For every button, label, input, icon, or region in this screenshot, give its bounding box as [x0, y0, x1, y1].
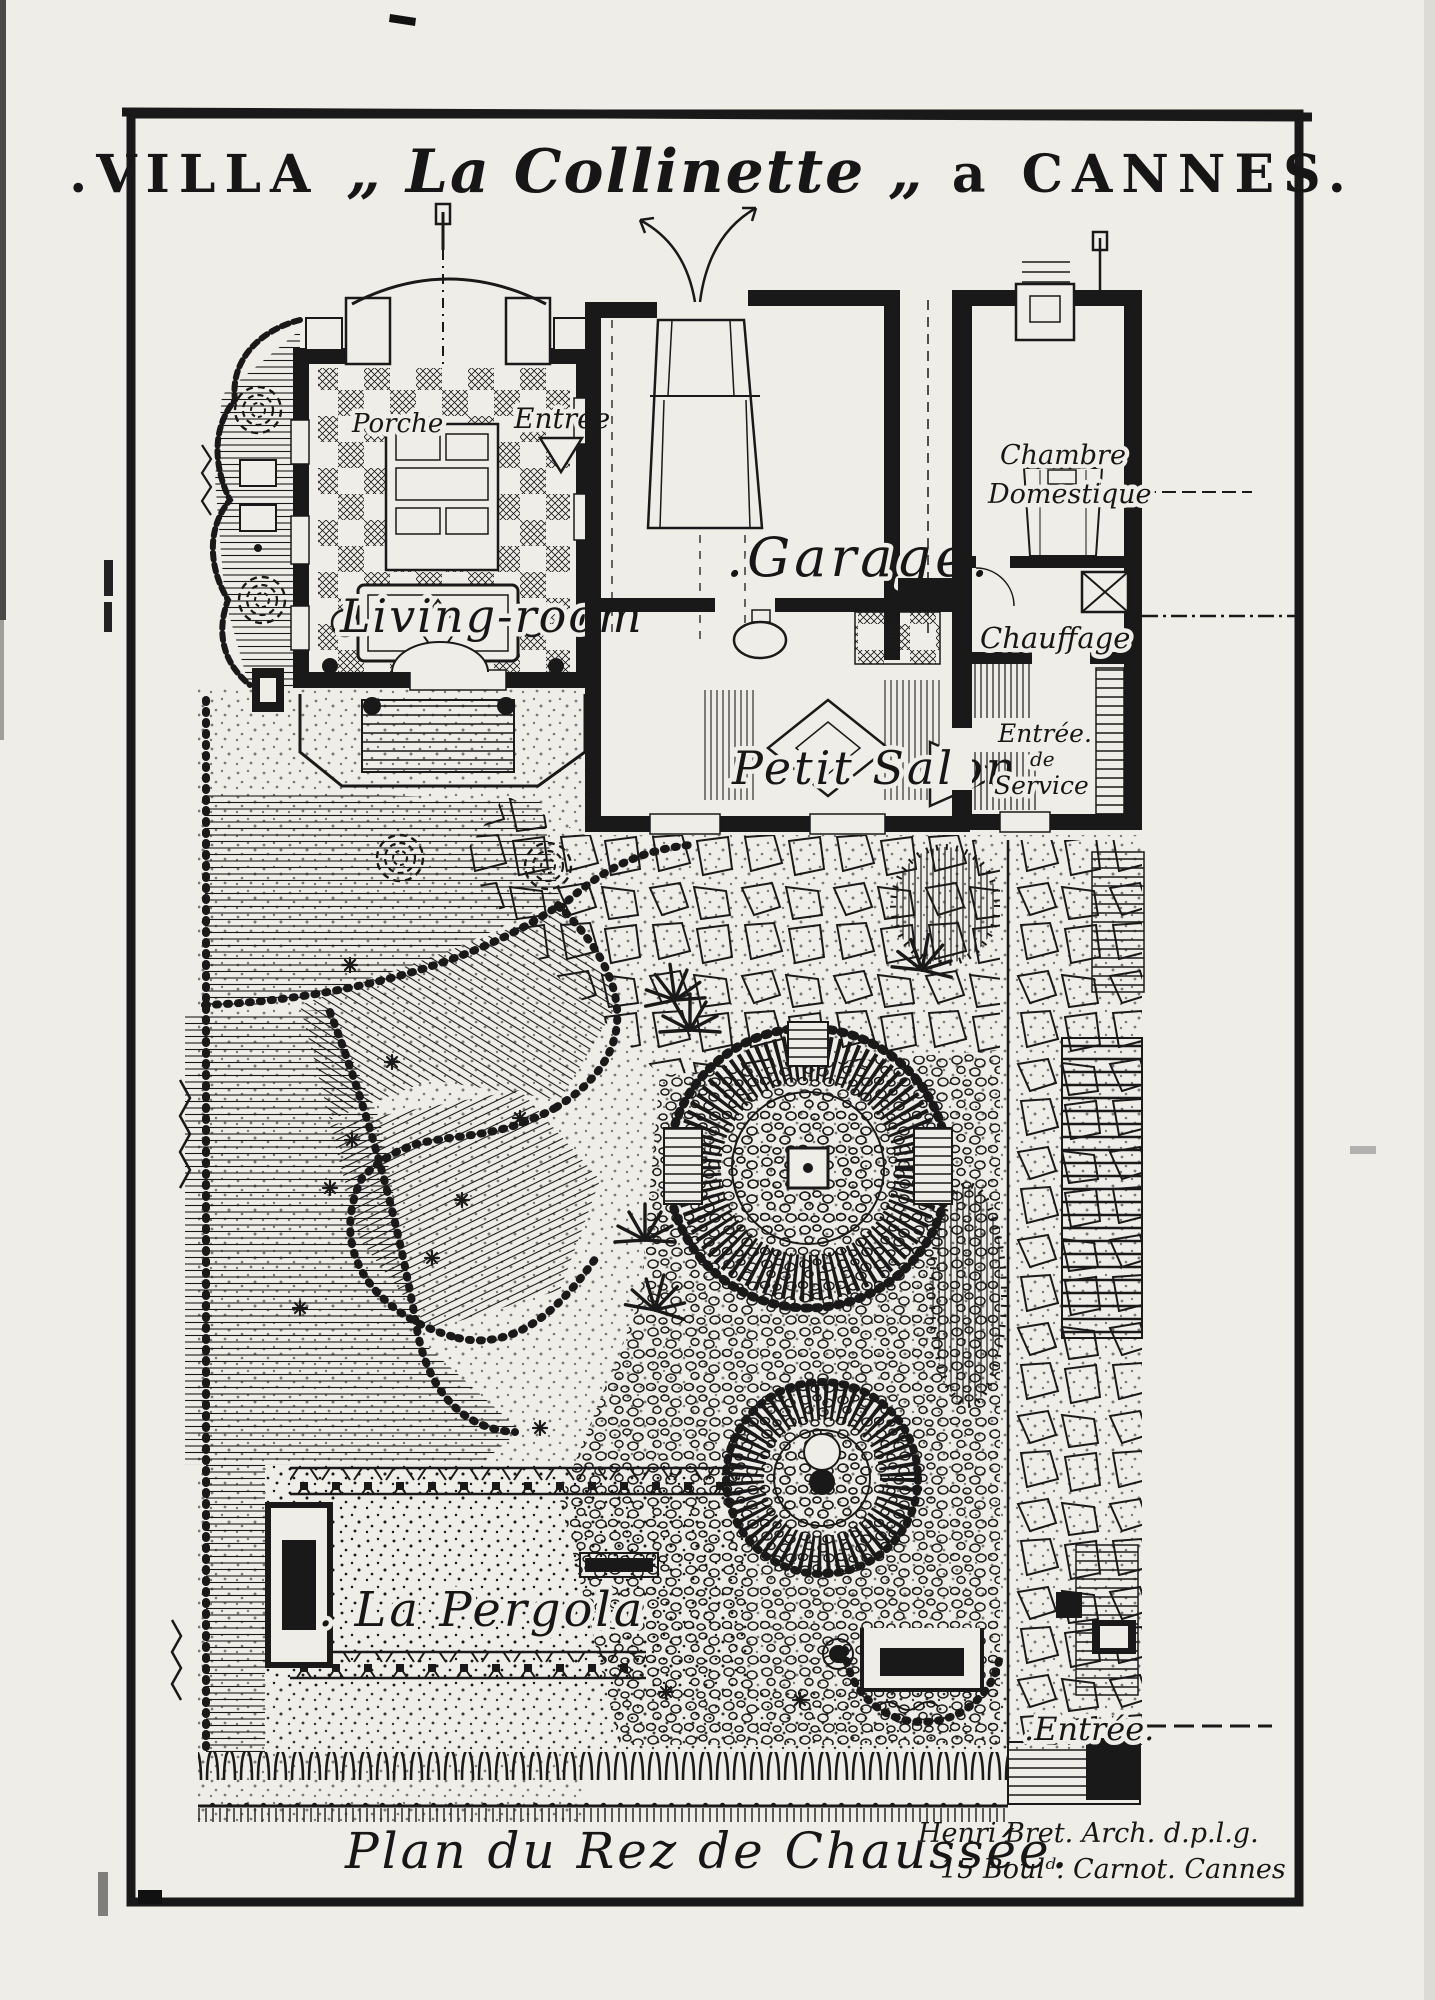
driveway-arrows [640, 208, 756, 302]
label-service-entree: Entrée. [997, 719, 1092, 748]
title-name: „ La Collinette „ [346, 137, 924, 207]
label-chauffage: Chauffage [980, 621, 1130, 655]
architect-credit-2: 15 Boulᵈ. Carnot. Cannes [940, 1854, 1286, 1885]
plan-title: .VILLA „ La Collinette „ a CANNES. [69, 137, 1355, 207]
pergola-area: . La Pergola [265, 1462, 748, 1688]
porch [306, 204, 590, 366]
svg-text:.VILLA „ La Collinette „: .VILLA „ La Collinette „ a CANNES. [69, 137, 1355, 207]
title-villa: .VILLA [69, 144, 319, 205]
shrub-right-lower [932, 1185, 1004, 1405]
title-cannes: a CANNES. [952, 144, 1355, 205]
label-domestique: Domestique [987, 479, 1151, 510]
label-service-de: de [1030, 747, 1055, 771]
shrub-right-upper [893, 847, 997, 963]
label-garden-entree: .Entrée. [1024, 1710, 1154, 1748]
garden: . La Pergola .Entrée. [172, 688, 1272, 1822]
floor-plan-drawing: .VILLA „ La Collinette „ a CANNES. [0, 0, 1435, 2000]
bottom-hedge [198, 1752, 1008, 1822]
label-chambre: Chambre [1000, 440, 1126, 471]
scanned-plan-page: .VILLA „ La Collinette „ a CANNES. [0, 0, 1435, 2000]
label-porche: Porche [351, 409, 443, 439]
captions: Plan du Rez de Chaussée. Henri Bret. Arc… [344, 1818, 1286, 1885]
label-pergola: . La Pergola [318, 1582, 645, 1638]
label-service: Service [994, 771, 1089, 800]
architect-credit-1: Henri Bret. Arch. d.p.l.g. [917, 1818, 1259, 1849]
left-garden-bed [202, 320, 300, 712]
service-wing: Chambre Domestique Chauffage Entrée. de … [898, 232, 1296, 832]
